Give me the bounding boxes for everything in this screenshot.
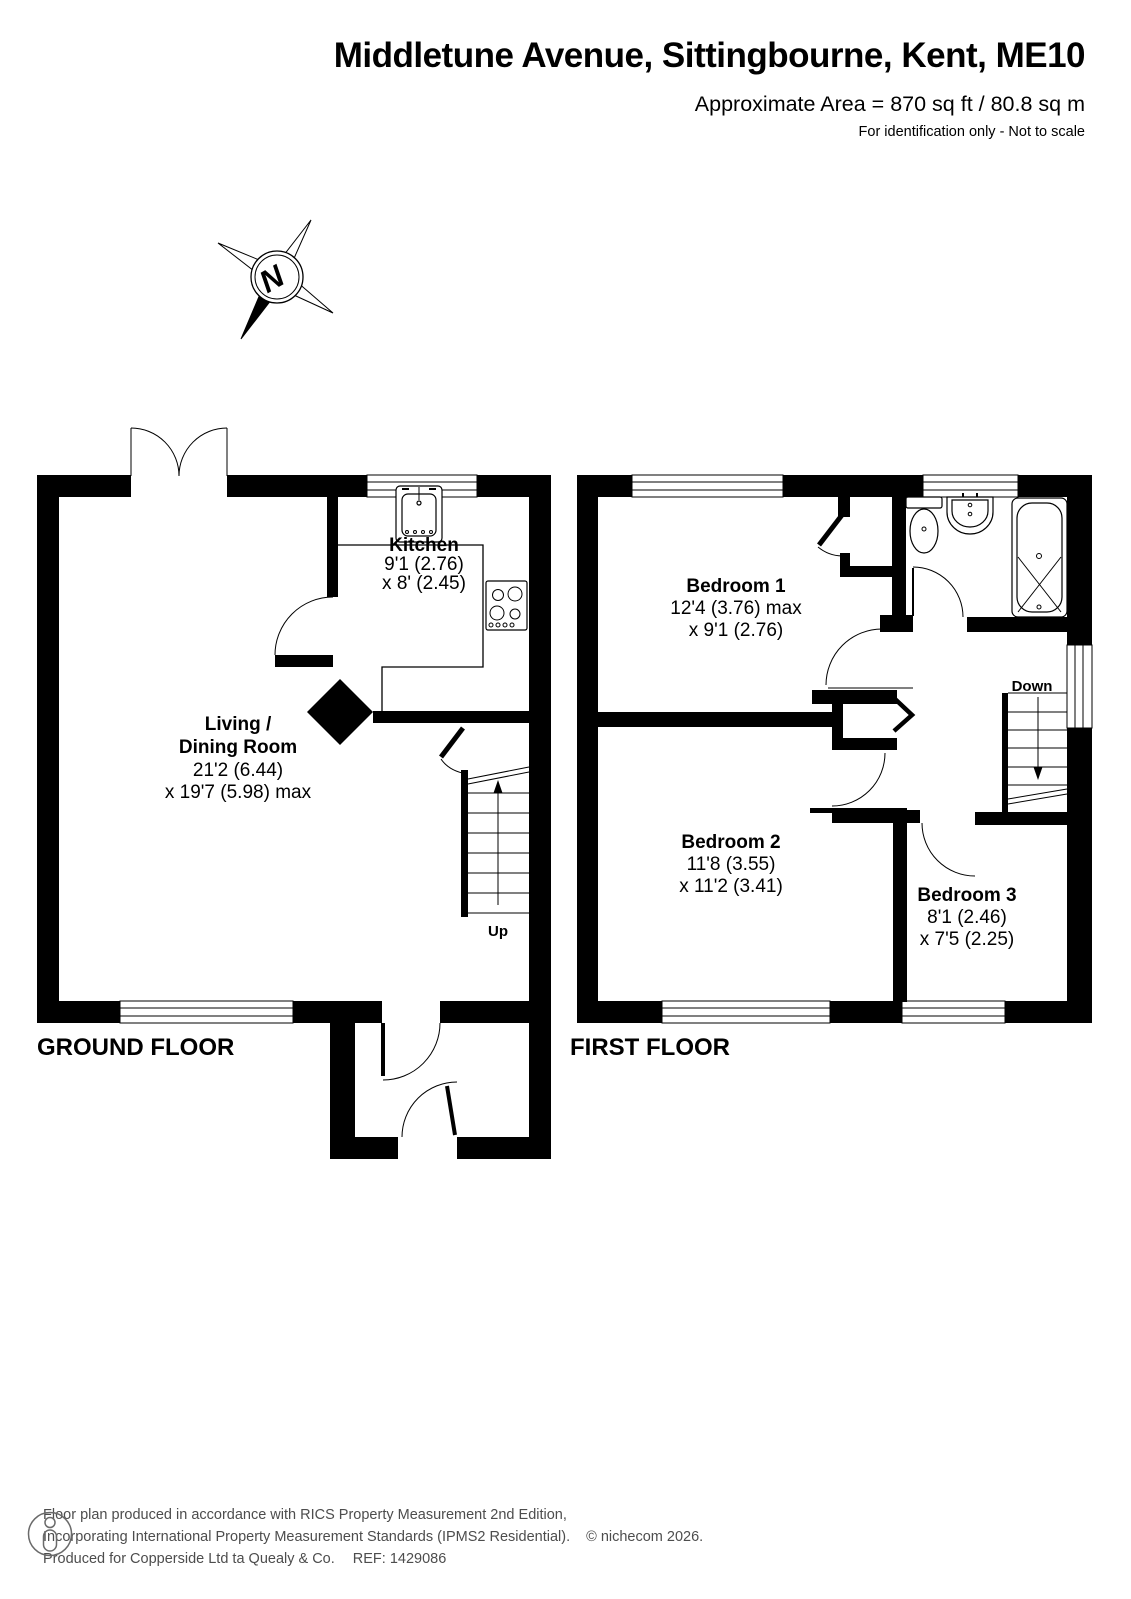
bedroom3-dim-1: 8'1 (2.46) [927,907,1007,928]
toilet-icon [906,497,942,553]
copyright: © nichecom 2026. [570,1529,703,1545]
bedroom3-door-arc [922,823,975,876]
stairs-up [461,767,529,917]
kitchen-sink-icon [396,486,442,542]
ff-bedroom2-window [662,1001,830,1023]
gf-living-window [120,1001,293,1023]
room-label-bedroom3: Bedroom 3 [917,885,1016,906]
gf-french-doors [131,428,227,476]
ff-landing-window [1067,645,1092,728]
room-label-living-1: Living / [205,714,272,735]
bathtub-icon [1012,498,1067,617]
kitchen-dim-1: 9'1 (2.76) [384,554,464,575]
bathroom-door [913,567,963,617]
stairs-down-label: Down [1012,678,1053,695]
kitchen-dim-2: x 8' (2.45) [382,573,466,594]
person-icon [27,1504,73,1566]
compass-north-icon: N [218,220,333,339]
footer-line-2: Incorporating International Property Mea… [43,1526,703,1548]
gf-stair-door [441,728,467,774]
room-label-living-2: Dining Room [179,737,297,758]
first-floor-plan: Bedroom 1 12'4 (3.76) max x 9'1 (2.76) B… [570,475,1092,1061]
living-dim-2: x 19'7 (5.98) max [165,782,312,803]
bedroom3-dim-2: x 7'5 (2.25) [920,929,1014,950]
kitchen-door-arc [275,597,333,655]
bedroom2-dim-2: x 11'2 (3.41) [679,876,783,897]
reference-number: REF: 1429086 [335,1551,447,1567]
floorplan-page: Middletune Avenue, Sittingbourne, Kent, … [0,0,1131,1599]
footer-line-1: Floor plan produced in accordance with R… [43,1504,703,1526]
hob-icon [486,581,527,630]
ground-floor-label: GROUND FLOOR [37,1034,234,1061]
bedroom2-door-arc [832,753,885,806]
ground-floor-plan: Kitchen 9'1 (2.76) x 8' (2.45) Living / … [37,428,551,1159]
porch-inner-door [383,1023,440,1080]
footer: Floor plan produced in accordance with R… [27,1504,703,1570]
front-door [402,1082,457,1137]
footer-text: Floor plan produced in accordance with R… [43,1504,703,1570]
ff-bedroom3-window [902,1001,1005,1023]
footer-line-3: Produced for Copperside Ltd ta Quealy & … [43,1548,703,1570]
bedroom1-door [818,515,842,556]
room-label-bedroom2: Bedroom 2 [681,832,780,853]
bedroom1-dim-2: x 9'1 (2.76) [689,620,783,641]
room-label-kitchen: Kitchen [389,535,459,556]
bedroom2-dim-1: 11'8 (3.55) [687,854,776,875]
living-dim-1: 21'2 (6.44) [193,760,283,781]
first-floor-label: FIRST FLOOR [570,1034,730,1061]
room-label-bedroom1: Bedroom 1 [686,576,786,597]
landing-door-arc [826,629,882,685]
ff-bedroom1-window [632,475,783,497]
stairs-down [1002,693,1067,813]
bedroom1-dim-1: 12'4 (3.76) max [670,598,802,619]
floor-plan-svg: N [0,0,1131,1599]
ff-bathroom-window [923,475,1018,497]
stairs-up-label: Up [488,923,508,940]
bathroom-sink-icon [947,493,993,534]
